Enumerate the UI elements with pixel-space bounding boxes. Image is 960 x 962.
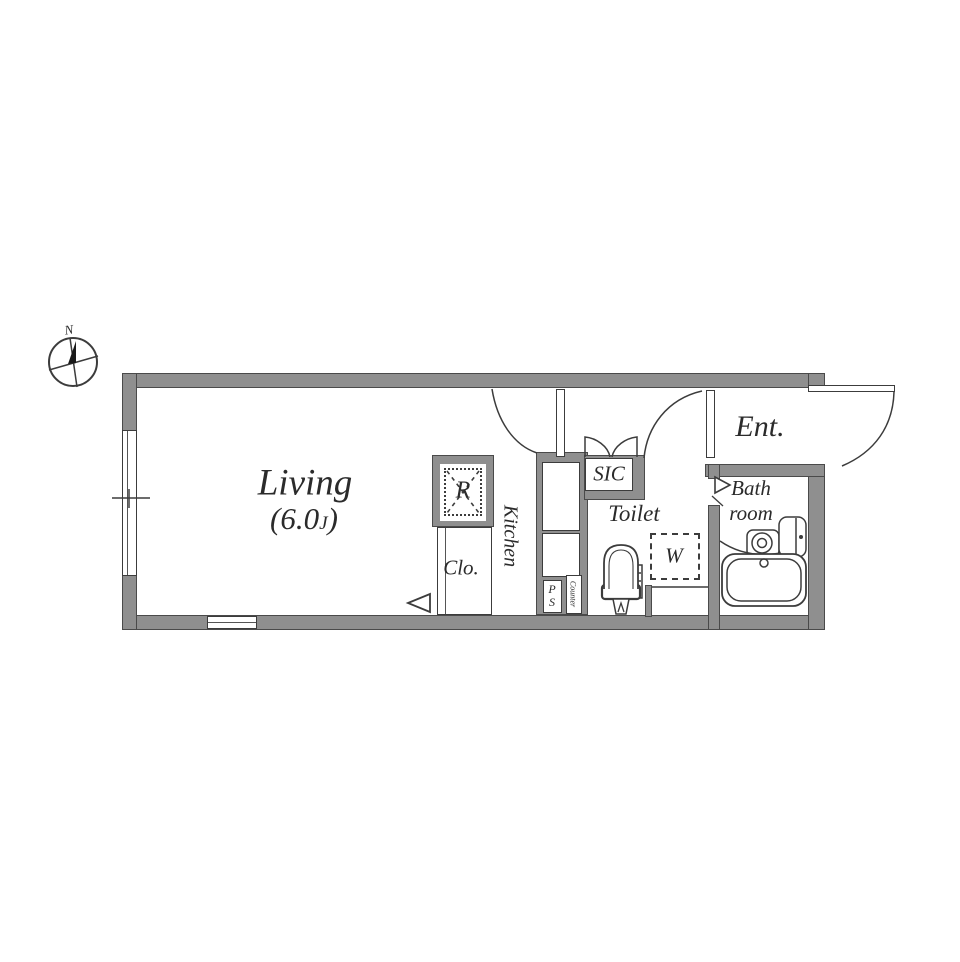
living-room-label: Living: [258, 462, 353, 505]
living-size-close: ): [328, 501, 338, 536]
entrance-door-arc: [842, 392, 894, 466]
bath-sink-bowl: [752, 533, 772, 553]
bathroom-label-line1: Bath: [731, 476, 771, 500]
sic-label: SIC: [593, 462, 625, 487]
bath-toilet-button: [799, 535, 803, 539]
living-size-unit: J: [319, 513, 328, 534]
plan-linework: [0, 0, 960, 962]
compass-needle: [68, 341, 76, 364]
living-door-arc: [492, 389, 537, 453]
counter-label: Counter: [569, 581, 578, 607]
pipe-space-line1: P: [548, 582, 555, 596]
toilet-label: Toilet: [608, 501, 660, 527]
bathroom-door-fold-line: [712, 496, 723, 506]
bathroom-label-line2: room: [729, 501, 773, 525]
pipe-space-line2: S: [549, 595, 555, 609]
floor-plan-canvas: N Living (6.0J) Kitchen Clo. R SIC Toile…: [0, 0, 960, 962]
hall-door-arc: [644, 391, 702, 458]
washer-label: W: [665, 544, 683, 569]
sic-door-left-arc: [585, 437, 610, 457]
closet-label: Clo.: [443, 556, 479, 581]
pipe-space-label: P S: [548, 583, 555, 609]
bathtub-outer: [722, 554, 806, 606]
entrance-label: Ent.: [735, 410, 784, 444]
living-size-open: (6.0: [270, 501, 319, 536]
kitchen-label: Kitchen: [499, 505, 522, 567]
sic-door-right-arc: [612, 437, 637, 457]
bathroom-label: Bath room: [729, 476, 773, 526]
closet-door-marker: [408, 594, 430, 612]
compass-north-label: N: [64, 321, 75, 338]
refrigerator-label: R: [456, 478, 471, 505]
living-room-size: (6.0J): [270, 501, 338, 537]
bathroom-door-marker: [715, 477, 730, 493]
